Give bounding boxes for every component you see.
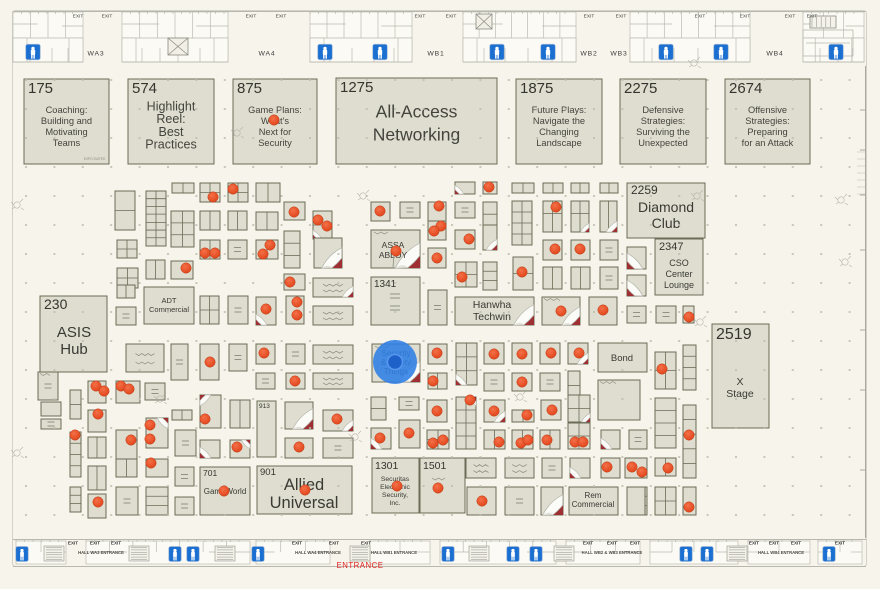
svg-text:EXIT: EXIT: [769, 541, 779, 546]
svg-text:HALL WB4 ENTRANCE: HALL WB4 ENTRANCE: [758, 550, 804, 555]
svg-text:EXIT: EXIT: [329, 541, 339, 546]
svg-text:EXIT: EXIT: [630, 541, 640, 546]
svg-text:WB3: WB3: [610, 51, 627, 58]
svg-text:EXIT: EXIT: [584, 14, 595, 20]
svg-text:EXIT: EXIT: [68, 541, 78, 546]
svg-text:EXIT: EXIT: [102, 14, 113, 20]
svg-text:EXIT: EXIT: [695, 14, 706, 20]
svg-text:EXIT: EXIT: [276, 14, 287, 20]
svg-text:EXIT: EXIT: [73, 14, 84, 20]
svg-text:EXIT: EXIT: [90, 541, 100, 546]
svg-text:EXIT: EXIT: [292, 541, 302, 546]
svg-text:HALL WA3 ENTRANCE: HALL WA3 ENTRANCE: [78, 550, 124, 555]
svg-text:WA3: WA3: [88, 51, 105, 58]
svg-text:EXIT: EXIT: [111, 541, 121, 546]
svg-text:EXIT: EXIT: [835, 541, 845, 546]
svg-text:WB4: WB4: [766, 51, 783, 58]
svg-text:WB2: WB2: [580, 51, 597, 58]
svg-text:EXIT: EXIT: [807, 14, 818, 20]
svg-text:EXIT: EXIT: [415, 14, 426, 20]
svg-text:WB1: WB1: [427, 51, 444, 58]
svg-text:HALL WA4 ENTRANCE: HALL WA4 ENTRANCE: [295, 550, 341, 555]
svg-text:WA4: WA4: [259, 51, 276, 58]
svg-text:EXIT: EXIT: [583, 541, 593, 546]
svg-text:EXIT: EXIT: [791, 541, 801, 546]
svg-text:EXIT: EXIT: [446, 14, 457, 20]
svg-text:HALL WB2 & WB3 ENTRANCE: HALL WB2 & WB3 ENTRANCE: [582, 550, 643, 555]
svg-text:EXIT: EXIT: [740, 14, 751, 20]
svg-text:EXIT: EXIT: [361, 541, 371, 546]
svg-text:ENTRANCE: ENTRANCE: [337, 561, 384, 570]
svg-text:EXIT: EXIT: [749, 541, 759, 546]
svg-text:EXIT: EXIT: [246, 14, 257, 20]
svg-text:EXIT: EXIT: [616, 14, 627, 20]
svg-text:HALL WB1 ENTRANCE: HALL WB1 ENTRANCE: [371, 550, 417, 555]
svg-text:EXIT: EXIT: [607, 541, 617, 546]
svg-text:EXIT: EXIT: [785, 14, 796, 20]
